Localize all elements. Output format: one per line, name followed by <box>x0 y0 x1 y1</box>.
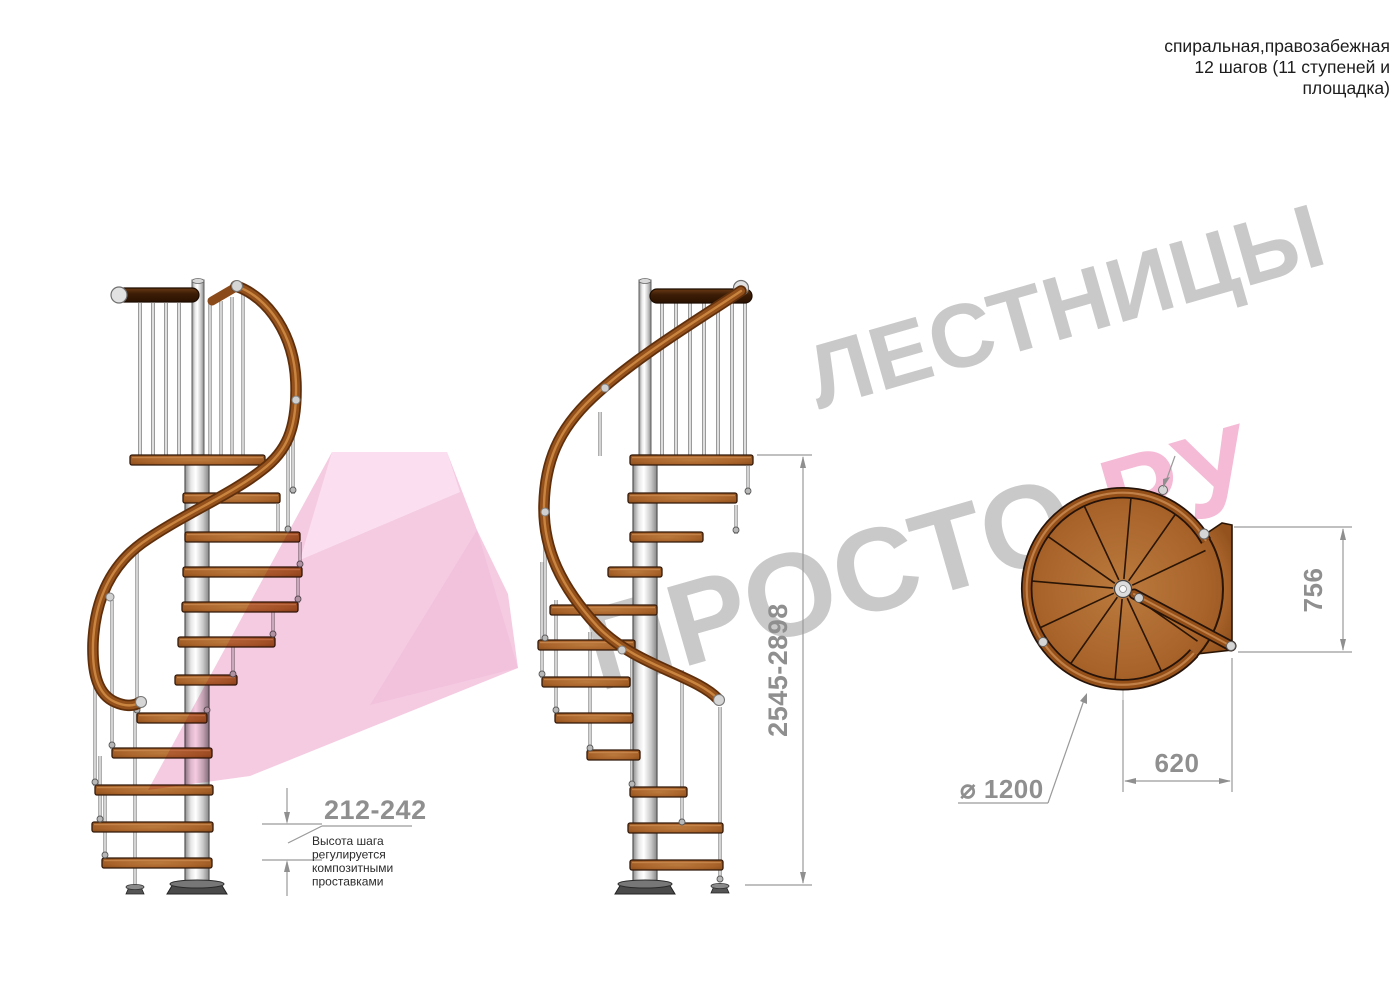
step-height-value: 212-242 <box>324 795 427 825</box>
total-height-value: 2545-2898 <box>763 603 793 737</box>
plan-diameter-value: ⌀ 1200 <box>960 774 1044 804</box>
drawing-canvas: ЛЕСТНИЦЫ ПРОСТО.РУ <box>0 0 1400 1000</box>
dimension-plan-depth <box>1234 527 1352 652</box>
leader-arrow-handrail <box>1163 456 1175 488</box>
plan-depth-value: 756 <box>1298 568 1328 613</box>
dimension-annotations: 212-242 Высота шага регулируется компози… <box>0 0 1400 1000</box>
step-height-note: Высота шага регулируется композитными пр… <box>312 834 397 889</box>
plan-width-value: 620 <box>1155 748 1200 778</box>
